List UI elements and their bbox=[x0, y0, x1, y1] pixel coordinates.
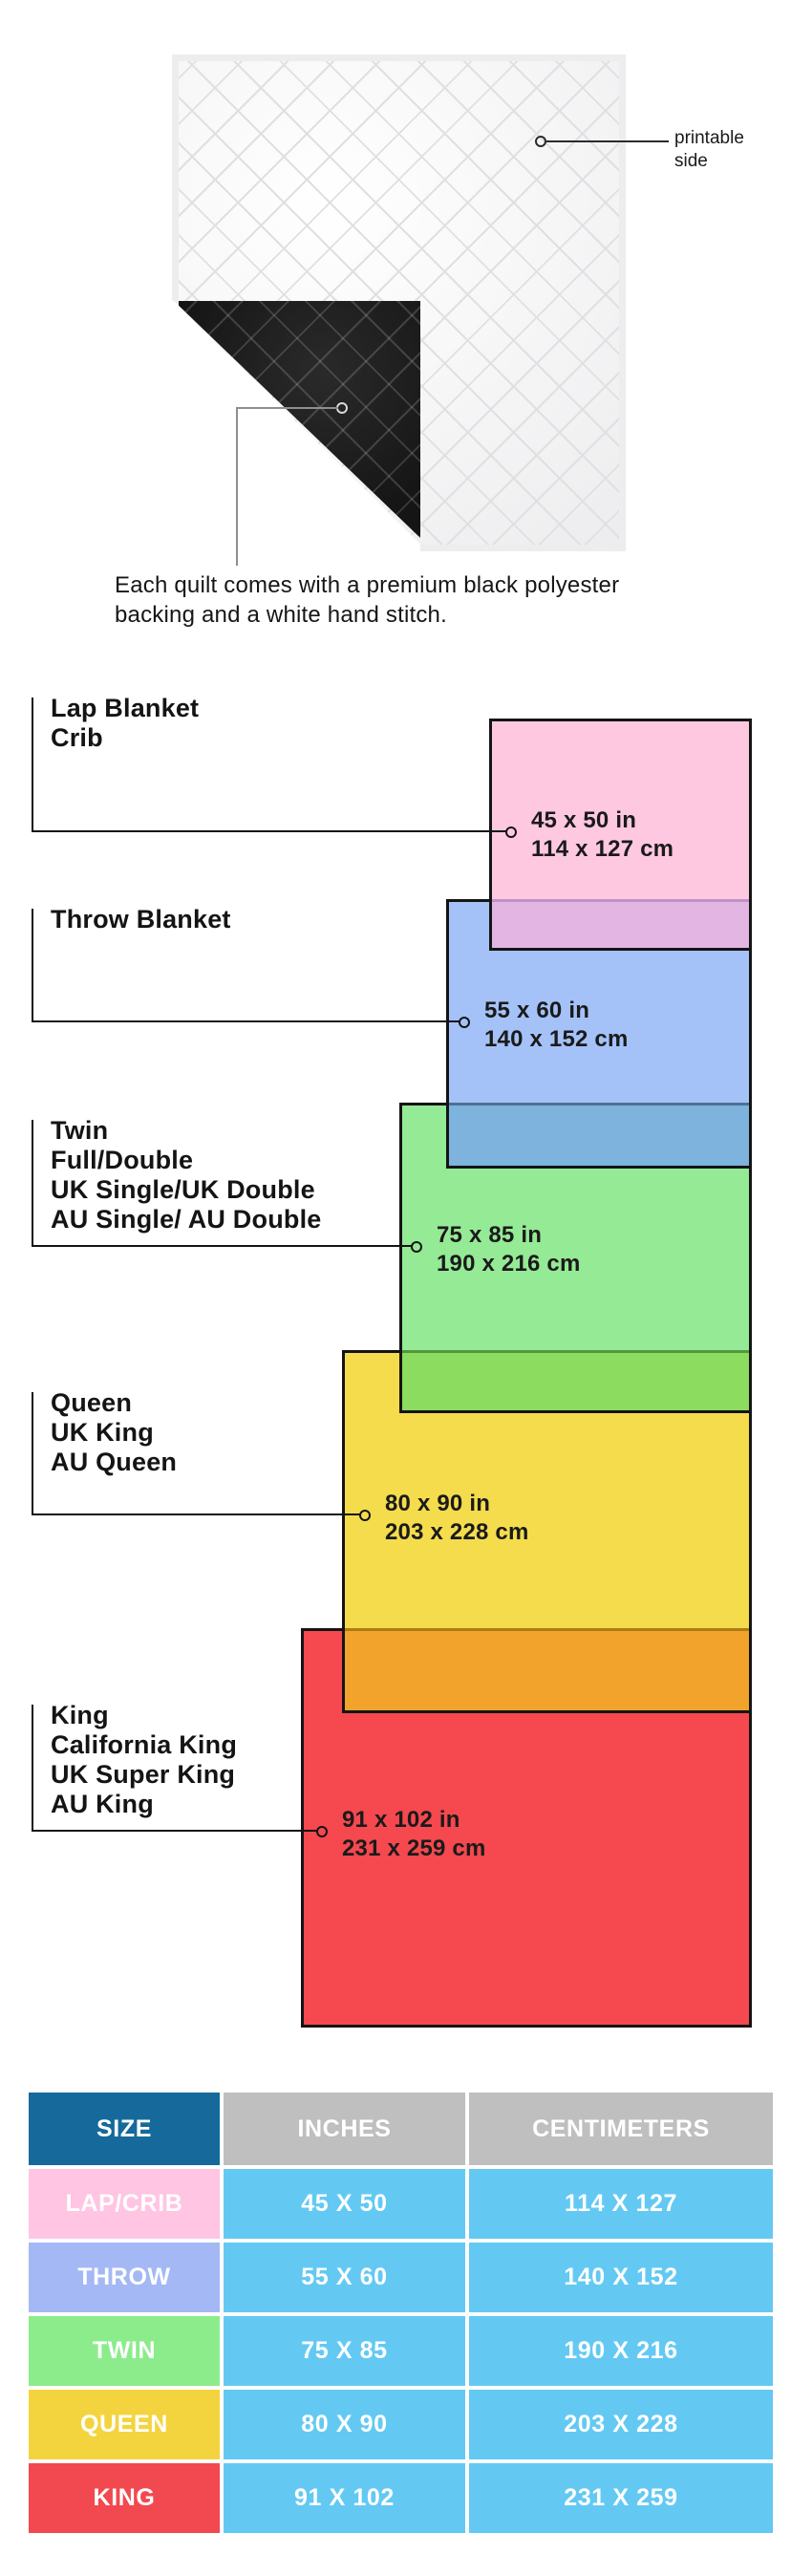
dimensions-cm: 114 x 127 cm bbox=[531, 835, 673, 864]
leader-horizontal-throw bbox=[32, 1020, 460, 1022]
table-cell-inches-twin: 75 X 85 bbox=[224, 2316, 465, 2386]
printable-side-marker-icon bbox=[535, 136, 546, 147]
table-row-label-king: KING bbox=[29, 2463, 220, 2533]
label-line: California King bbox=[51, 1730, 237, 1760]
size-guide-infographic: printable side Each quilt comes with a p… bbox=[0, 0, 791, 2576]
label-line: Queen bbox=[51, 1388, 177, 1418]
quilt-binding-right bbox=[619, 54, 626, 551]
table-cell-inches-lap: 45 X 50 bbox=[224, 2169, 465, 2239]
label-line: King bbox=[51, 1701, 237, 1730]
table-header-centimeters: CENTIMETERS bbox=[469, 2093, 773, 2165]
quilt-caption-line-1: Each quilt comes with a premium black po… bbox=[115, 570, 707, 600]
label-line: Twin bbox=[51, 1116, 322, 1146]
marker-icon-queen bbox=[359, 1510, 371, 1521]
label-line: AU Single/ AU Double bbox=[51, 1205, 322, 1234]
table-cell-cm-queen: 203 X 228 bbox=[469, 2390, 773, 2459]
table-cell-inches-throw: 55 X 60 bbox=[224, 2243, 465, 2312]
leader-vertical-twin bbox=[32, 1120, 33, 1247]
marker-icon-lap bbox=[505, 826, 517, 838]
quilt-binding-bottom bbox=[420, 545, 626, 551]
marker-icon-king bbox=[316, 1826, 328, 1837]
table-cell-cm-lap: 114 X 127 bbox=[469, 2169, 773, 2239]
table-row-label-twin: TWIN bbox=[29, 2316, 220, 2386]
printable-side-label: printable side bbox=[674, 127, 770, 173]
label-line: AU Queen bbox=[51, 1448, 177, 1477]
label-line: Throw Blanket bbox=[51, 905, 231, 934]
leader-horizontal-king bbox=[32, 1830, 317, 1832]
leader-vertical-queen bbox=[32, 1392, 33, 1515]
table-cell-cm-throw: 140 X 152 bbox=[469, 2243, 773, 2312]
table-row-label-queen: QUEEN bbox=[29, 2390, 220, 2459]
overlap-twin-over-queen bbox=[402, 1350, 749, 1410]
printable-side-leader-line bbox=[546, 140, 669, 142]
label-queen: Queen UK King AU Queen bbox=[51, 1388, 177, 1477]
label-line: Full/Double bbox=[51, 1146, 322, 1175]
table-cell-inches-queen: 80 X 90 bbox=[224, 2390, 465, 2459]
table-header-size: SIZE bbox=[29, 2093, 220, 2165]
label-line: UK Super King bbox=[51, 1760, 237, 1790]
label-lap-crib: Lap Blanket Crib bbox=[51, 694, 199, 753]
overlap-throw-over-twin bbox=[449, 1103, 749, 1166]
dimensions-cm: 190 x 216 cm bbox=[437, 1250, 581, 1278]
dimensions-cm: 203 x 228 cm bbox=[385, 1518, 529, 1547]
leader-vertical-lap bbox=[32, 698, 33, 832]
quilt-illustration bbox=[172, 54, 626, 551]
dimensions-inches: 75 x 85 in bbox=[437, 1221, 581, 1250]
dimensions-cm: 140 x 152 cm bbox=[484, 1025, 629, 1054]
label-twin: Twin Full/Double UK Single/UK Double AU … bbox=[51, 1116, 322, 1234]
table-row-label-throw: THROW bbox=[29, 2243, 220, 2312]
dimensions-queen: 80 x 90 in 203 x 228 cm bbox=[385, 1490, 529, 1547]
quilt-binding-left bbox=[172, 54, 179, 308]
dimensions-king: 91 x 102 in 231 x 259 cm bbox=[342, 1806, 486, 1863]
dimensions-throw: 55 x 60 in 140 x 152 cm bbox=[484, 997, 629, 1054]
table-cell-inches-king: 91 X 102 bbox=[224, 2463, 465, 2533]
marker-icon-throw bbox=[459, 1017, 470, 1028]
leader-horizontal-twin bbox=[32, 1245, 412, 1247]
table-header-inches: INCHES bbox=[224, 2093, 465, 2165]
label-line: Crib bbox=[51, 723, 199, 753]
label-line: UK Single/UK Double bbox=[51, 1175, 322, 1205]
quilt-caption: Each quilt comes with a premium black po… bbox=[115, 570, 707, 630]
size-table: SIZE INCHES CENTIMETERS LAP/CRIB 45 X 50… bbox=[29, 2093, 773, 2533]
label-line: AU King bbox=[51, 1790, 237, 1819]
leader-vertical-throw bbox=[32, 909, 33, 1022]
dimensions-lap: 45 x 50 in 114 x 127 cm bbox=[531, 806, 673, 864]
dimensions-cm: 231 x 259 cm bbox=[342, 1835, 486, 1863]
dimensions-inches: 55 x 60 in bbox=[484, 997, 629, 1025]
dimensions-inches: 80 x 90 in bbox=[385, 1490, 529, 1518]
table-row-label-lap-crib: LAP/CRIB bbox=[29, 2169, 220, 2239]
label-throw: Throw Blanket bbox=[51, 905, 231, 934]
table-cell-cm-king: 231 X 259 bbox=[469, 2463, 773, 2533]
marker-icon-twin bbox=[411, 1241, 422, 1253]
backing-leader-line-horizontal bbox=[236, 407, 338, 409]
dimensions-inches: 45 x 50 in bbox=[531, 806, 673, 835]
leader-horizontal-lap bbox=[32, 830, 506, 832]
leader-vertical-king bbox=[32, 1705, 33, 1832]
label-line: UK King bbox=[51, 1418, 177, 1448]
table-cell-cm-twin: 190 X 216 bbox=[469, 2316, 773, 2386]
label-king: King California King UK Super King AU Ki… bbox=[51, 1701, 237, 1819]
leader-horizontal-queen bbox=[32, 1513, 360, 1515]
backing-leader-line-vertical bbox=[236, 407, 238, 566]
label-line: Lap Blanket bbox=[51, 694, 199, 723]
quilt-binding-top bbox=[172, 54, 626, 61]
overlap-lap-over-throw bbox=[492, 899, 749, 948]
quilt-caption-line-2: backing and a white hand stitch. bbox=[115, 600, 707, 630]
dimensions-inches: 91 x 102 in bbox=[342, 1806, 486, 1835]
overlap-queen-over-king bbox=[345, 1628, 749, 1710]
dimensions-twin: 75 x 85 in 190 x 216 cm bbox=[437, 1221, 581, 1278]
